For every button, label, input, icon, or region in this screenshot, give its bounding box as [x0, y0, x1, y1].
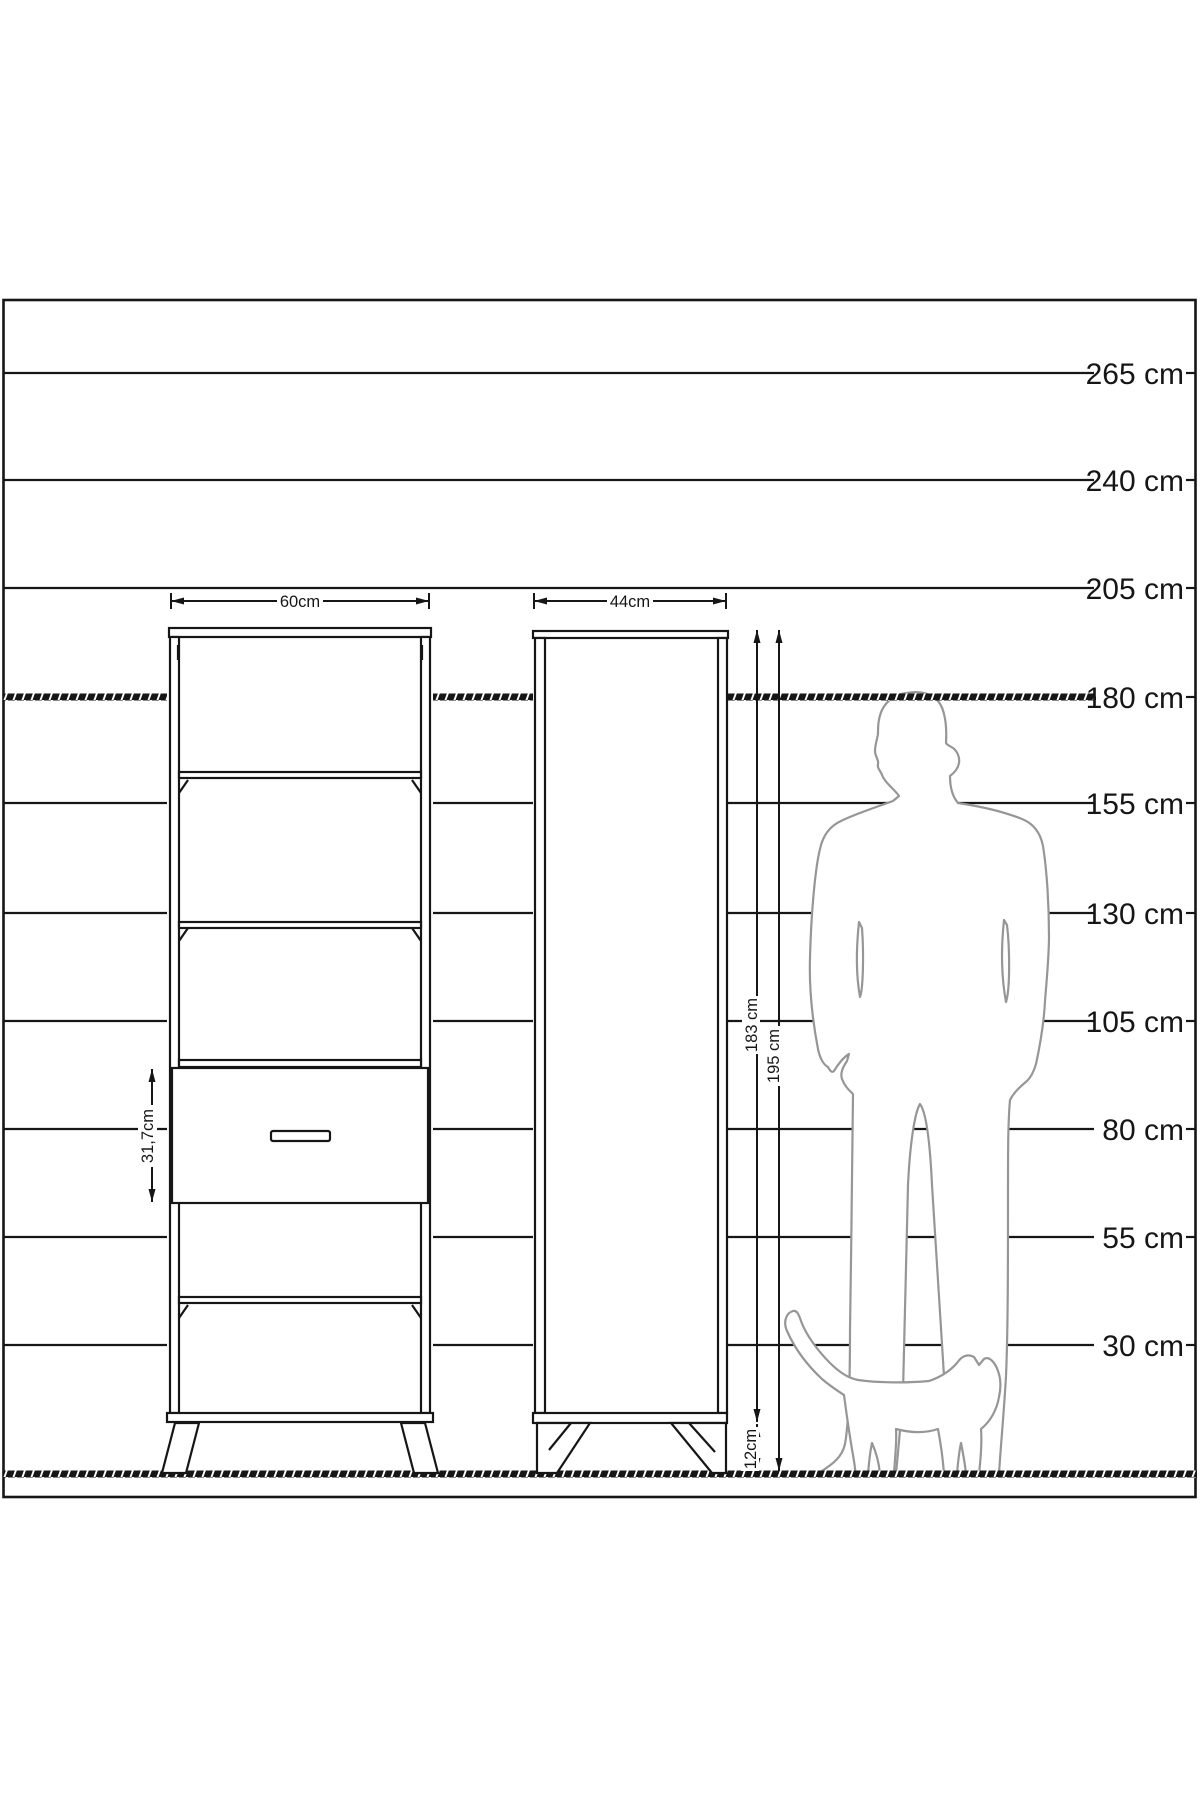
- cabinet-front-right-wall: [421, 637, 430, 1413]
- cabinet-front-shelf-2: [179, 922, 421, 928]
- total-height-label: 195 cm: [765, 1029, 783, 1083]
- cabinet-front-left-wall: [170, 637, 179, 1413]
- man-left-arm-gap: [857, 922, 863, 997]
- drawer-height-label: 31,7cm: [139, 1109, 157, 1163]
- scale-label-55: 55 cm: [1102, 1222, 1184, 1255]
- cabinet-side-right-leg: [671, 1423, 726, 1473]
- cabinet-side-body-mask: [533, 629, 728, 1423]
- cabinet-front-left-leg: [162, 1423, 199, 1473]
- man-silhouette: [810, 692, 1049, 1474]
- front-view-cabinet: [162, 626, 438, 1473]
- cabinet-front-shelf-1: [179, 772, 421, 778]
- leg-height-label: 12cm: [742, 1429, 760, 1469]
- scale-label-205: 205 cm: [1086, 573, 1184, 606]
- cabinet-front-top-panel: [169, 628, 431, 637]
- scale-label-30: 30 cm: [1102, 1330, 1184, 1363]
- man-right-arm-gap: [1002, 920, 1009, 1002]
- cabinet-side-top-panel: [533, 631, 728, 638]
- cabinet-side-back-wall: [535, 638, 545, 1413]
- scale-label-180: 180 cm: [1086, 682, 1184, 715]
- drawer-handle: [271, 1131, 330, 1141]
- scale-label-130: 130 cm: [1086, 898, 1184, 931]
- cabinet-front-shelf-4: [179, 1297, 421, 1303]
- scale-label-240: 240 cm: [1086, 465, 1184, 498]
- side-width-label: 44cm: [610, 593, 650, 611]
- furniture-dimension-diagram: 60cm 44cm 31,7cm 183 cm 195 cm: [0, 0, 1200, 1800]
- scale-label-105: 105 cm: [1086, 1006, 1184, 1039]
- cabinet-front-shelf-3: [179, 1060, 421, 1067]
- human-figure: [810, 692, 1049, 1474]
- cabinet-side-front-wall: [718, 638, 727, 1413]
- cabinet-front-right-leg: [401, 1423, 438, 1473]
- front-width-label: 60cm: [280, 593, 320, 611]
- diagram-drawing: 60cm 44cm 31,7cm 183 cm 195 cm: [0, 0, 1200, 1800]
- body-height-label: 183 cm: [743, 998, 761, 1052]
- height-scale-labels: 265 cm 240 cm 205 cm 180 cm 155 cm 130 c…: [1086, 358, 1184, 1363]
- scale-label-155: 155 cm: [1086, 788, 1184, 821]
- scale-label-80: 80 cm: [1102, 1114, 1184, 1147]
- scale-label-265: 265 cm: [1086, 358, 1184, 391]
- cabinet-front-bottom-panel: [167, 1413, 433, 1422]
- side-view-cabinet: [533, 629, 728, 1473]
- cabinet-side-bottom-panel: [533, 1413, 727, 1423]
